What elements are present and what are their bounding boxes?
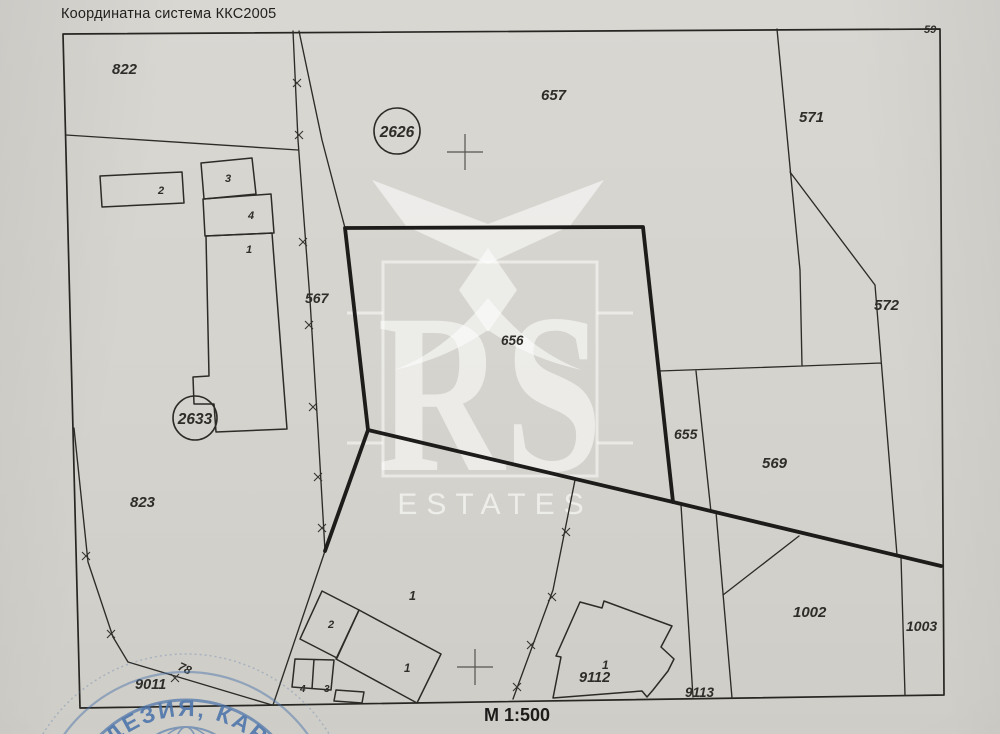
parcel-label-823: 823	[130, 494, 156, 511]
parcel-label-9112: 9112	[579, 670, 610, 686]
point-marker-number: 2626	[379, 124, 415, 141]
parcel-label-569: 569	[762, 455, 788, 472]
building-label: 2	[157, 185, 164, 197]
grid-cross	[447, 134, 483, 170]
watermark-wordmark: ESTATES	[397, 488, 592, 521]
map-scale-label: М 1:500	[484, 705, 550, 725]
parcel-label-571: 571	[799, 109, 824, 126]
stamp-arc-text-path: ГЕОДЕЗИЯ, КАРТОГ	[65, 695, 307, 734]
scanned-cadastral-map: Координатна система ККС2005 RS ESTATES	[0, 0, 1000, 734]
building-label: 3	[225, 173, 231, 185]
building-label: 3	[324, 684, 330, 695]
map-sheet-corner-ref: 59	[924, 24, 937, 36]
point-marker-number: 2633	[177, 411, 213, 428]
building-outline	[100, 172, 184, 207]
building-outline	[203, 194, 274, 236]
parcel-label-572: 572	[874, 297, 900, 314]
building-outline	[334, 690, 364, 703]
building-label: 4	[247, 210, 254, 222]
building-outline	[336, 610, 441, 703]
building-label: 2	[327, 619, 334, 631]
parcel-label-657: 657	[541, 87, 567, 104]
building-outline	[193, 233, 287, 432]
parcel-label-9113: 9113	[685, 685, 715, 700]
parcel-label-655: 655	[674, 426, 698, 442]
stamp-arc-text: ГЕОДЕЗИЯ, КАРТОГ	[65, 695, 307, 734]
parcel-label-1002: 1002	[793, 604, 827, 621]
buildings-upper-group	[100, 158, 287, 432]
building-9112-outline	[553, 601, 674, 698]
building-label: 4	[299, 684, 306, 695]
parcel-label-1-lower: 1	[409, 589, 416, 603]
building-label: 1	[246, 244, 252, 256]
grid-cross	[457, 649, 493, 685]
watermark-monogram: RS	[378, 268, 603, 520]
parcel-label-567: 567	[305, 290, 330, 306]
cadastral-map-canvas: RS ESTATES	[0, 0, 1000, 734]
parcel-label-822: 822	[112, 61, 138, 78]
building-label: 1	[404, 663, 410, 675]
parcel-label-1003: 1003	[906, 618, 937, 634]
buildings-lower-group	[292, 591, 674, 703]
building-label: 1	[602, 658, 609, 672]
parcel-label-656: 656	[501, 333, 524, 348]
watermark: RS ESTATES	[347, 180, 633, 521]
